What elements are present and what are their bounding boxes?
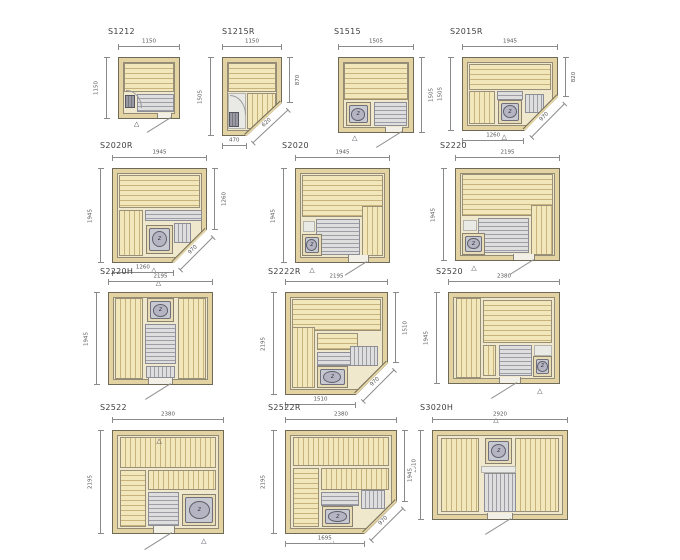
heater-top: z: [328, 511, 346, 521]
dimension: 1510: [404, 430, 405, 502]
dimension-label: 1150: [141, 40, 157, 46]
bench: [483, 345, 496, 376]
dimension-label: 2920: [492, 413, 508, 419]
heater-icon: z: [317, 366, 347, 388]
floor-boards: [145, 324, 176, 364]
dimension: 2195: [285, 281, 388, 282]
floor-boards: [350, 346, 378, 366]
dimension: 1695: [285, 543, 365, 544]
heater-icon: z: [322, 506, 353, 526]
plan-title-s2222r: S2222R: [268, 268, 301, 276]
heater-stones: z: [501, 103, 519, 121]
heater-stones: z: [150, 301, 171, 319]
bench: [456, 298, 481, 377]
dimension: 2195: [273, 292, 274, 395]
heater-top: z: [189, 501, 210, 519]
heater-icon: z: [302, 234, 322, 256]
plan-title-s1515: S1515: [334, 28, 361, 36]
bench: [483, 300, 552, 343]
steam-icon: z: [198, 507, 201, 513]
dimension: 1505: [450, 57, 451, 131]
dimension: 470: [222, 145, 247, 146]
vent-icon: △: [471, 265, 476, 272]
bench: [344, 63, 408, 100]
steam-icon: z: [357, 111, 360, 117]
dimension-label: 2195: [153, 275, 169, 281]
heater-stones: z: [488, 441, 509, 461]
plan-walls: z: [112, 430, 224, 534]
dimension-label: 1510: [403, 320, 409, 336]
bench: [362, 206, 383, 256]
heater-stones: z: [305, 237, 319, 253]
plan-title-s2020: S2020: [282, 142, 309, 150]
dimension-label: 1260: [485, 134, 501, 140]
door-swing-line: [376, 131, 402, 148]
dimension: 1505: [210, 57, 211, 136]
floor-boards: [497, 91, 523, 100]
plan-title-s2020r: S2020R: [100, 142, 133, 150]
dimension-label: 1945: [431, 207, 437, 223]
dimension: 2195: [273, 430, 274, 534]
plan-s2020: z△19451945: [295, 168, 390, 263]
plan-s2220h: z△21951945: [108, 292, 213, 385]
heater-stones: z: [325, 509, 350, 523]
bench: [321, 468, 389, 490]
plan-title-s3020h: S3020H: [420, 404, 453, 412]
dimension-label: 2195: [88, 474, 94, 490]
dimension: 2195: [108, 281, 213, 282]
plan-s2222r: z△9702195219515101510: [285, 292, 388, 395]
floor-boards: [137, 94, 174, 112]
heater-top: z: [537, 361, 547, 372]
bench: [228, 63, 277, 92]
steam-icon: z: [336, 514, 339, 520]
vent-icon: △: [352, 135, 357, 142]
floor-area: [534, 345, 553, 356]
heater-stones: z: [465, 236, 482, 252]
bench: [119, 210, 143, 257]
dimension-label: 1505: [198, 89, 204, 105]
dimension: 820: [565, 57, 566, 97]
plan-walls: z: [448, 292, 560, 384]
bench: [120, 470, 146, 527]
plan-title-s2520: S2520: [436, 268, 463, 276]
dimension-label: 1505: [368, 40, 384, 46]
dimension-label: 870: [296, 74, 302, 87]
bench: [119, 175, 201, 208]
bench: [292, 327, 315, 388]
heater-top: z: [351, 108, 365, 121]
heater-icon: z: [346, 102, 371, 126]
heater-stones: z: [149, 228, 169, 251]
steam-icon: z: [541, 363, 544, 369]
vent-icon: △: [537, 388, 542, 395]
dimension-label: 1945: [502, 40, 518, 46]
dimension: 2195: [455, 157, 560, 158]
dimension-label: 1260: [135, 266, 151, 272]
vent-icon: △: [201, 538, 206, 545]
plan-s1515: z△15051505: [338, 57, 414, 133]
floor-boards: [148, 492, 179, 526]
dimension: 1260: [214, 168, 215, 230]
steam-icon: z: [331, 374, 334, 380]
dimension: 1945: [462, 46, 558, 47]
plan-walls: z: [432, 430, 568, 520]
floor-area: [481, 466, 516, 473]
plan-s2220: z△21951945: [455, 168, 560, 261]
dimension-label: 1945: [424, 330, 430, 346]
dimension: 1505: [421, 57, 422, 133]
dimension: 1945: [100, 168, 101, 263]
bench: [293, 437, 390, 466]
plan-title-s2522: S2522: [100, 404, 127, 412]
dimension-label: 1945: [88, 208, 94, 224]
door-opening: [499, 377, 521, 383]
heater-icon: z: [462, 233, 485, 255]
bench: [148, 470, 216, 490]
vent-icon: △: [309, 267, 314, 274]
heater-icon: z: [485, 438, 512, 464]
steam-icon: z: [508, 109, 511, 115]
plan-title-s2220h: S2220H: [100, 268, 133, 276]
plan-title-s1212: S1212: [108, 28, 135, 36]
dimension: 1945: [436, 292, 437, 384]
plan-title-s2522r: S2522R: [268, 404, 301, 412]
dimension: 870: [289, 57, 290, 103]
dimension: 1260: [462, 140, 524, 141]
dimension-label: 2195: [329, 275, 345, 281]
plan-title-s2015r: S2015R: [450, 28, 483, 36]
steam-icon: z: [497, 448, 500, 454]
plan-s2520: z△23801945: [448, 292, 560, 384]
heater-stones: z: [185, 497, 213, 523]
bench: [469, 64, 552, 90]
bench: [531, 205, 553, 254]
floor-boards: [317, 352, 353, 366]
sauna-plans-sheet: S1212△11501150S1215R△62011501505870470S1…: [0, 0, 680, 560]
dimension: 1505: [338, 46, 414, 47]
dimension: 1150: [222, 46, 282, 47]
steam-icon: z: [159, 307, 162, 313]
heater-top: z: [152, 231, 167, 247]
plan-walls: z: [455, 168, 560, 261]
heater-top: z: [306, 239, 317, 251]
dimension-label: 470: [228, 139, 241, 145]
floor-boards: [321, 492, 358, 506]
floor-boards: [484, 473, 516, 512]
plan-walls: z: [338, 57, 414, 133]
vent-icon: △: [134, 121, 139, 128]
plan-s1212: △11501150: [118, 57, 180, 119]
dimension: 1150: [106, 57, 107, 119]
heater-top: z: [503, 105, 517, 118]
dimension: 1945: [283, 168, 284, 263]
dimension: 2380: [448, 281, 560, 282]
dimension-label: 2195: [500, 151, 516, 157]
bench: [293, 468, 319, 527]
heater-stones: z: [320, 369, 344, 385]
steam-icon: z: [472, 241, 475, 247]
dimension: 1945: [443, 168, 444, 261]
dimension-label: 1945: [408, 467, 414, 483]
plan-walls: z: [108, 292, 213, 385]
dimension-label: 1505: [429, 87, 435, 103]
dimension-label: 1510: [313, 398, 329, 404]
floor-boards: [374, 102, 407, 126]
floor-boards: [478, 218, 530, 253]
bench: [178, 298, 206, 378]
heater-icon: z: [182, 494, 216, 526]
bench: [115, 298, 143, 378]
plan-s2015r: z△970194515058201260: [462, 57, 558, 131]
plan-title-s2220: S2220: [440, 142, 467, 150]
heater-icon: z: [146, 225, 172, 254]
dimension: 2920: [432, 419, 568, 420]
plan-s2522r: z△9702380219515101695: [285, 430, 397, 534]
heater-top: z: [491, 444, 507, 459]
dimension-label: 2380: [333, 413, 349, 419]
heater-icon: z: [147, 298, 174, 322]
plan-title-s1215r: S1215R: [222, 28, 255, 36]
dimension: 1945: [420, 430, 421, 520]
dimension: 1510: [395, 292, 396, 363]
dimension-label: 1945: [335, 151, 351, 157]
plan-walls: [118, 57, 180, 119]
floor-boards: [361, 490, 385, 508]
floor-area: [303, 221, 315, 232]
floor-boards: [499, 345, 532, 376]
door-swing-line: [485, 518, 511, 535]
heater-top: z: [323, 371, 341, 383]
bench: [120, 437, 217, 468]
steam-icon: z: [158, 236, 161, 242]
dimension: 1945: [112, 157, 207, 158]
plan-s2522: z△△23802195: [112, 430, 224, 534]
dimension-label: 2380: [160, 413, 176, 419]
heater-icon: z: [533, 356, 553, 377]
heater-top: z: [467, 238, 480, 249]
dimension-label: 1260: [222, 191, 228, 207]
dimension-label: 2380: [496, 275, 512, 281]
dimension-label: 1695: [317, 537, 333, 543]
dimension-label: 2195: [261, 474, 267, 490]
dimension-label: 2195: [261, 336, 267, 352]
dimension-label: 1945: [271, 208, 277, 224]
heater-stones: z: [536, 359, 550, 374]
heater-top: z: [153, 304, 169, 317]
floor-boards: [146, 366, 175, 378]
dimension-label: 1945: [84, 331, 90, 347]
dimension: 1150: [118, 46, 180, 47]
heater-icon: z: [498, 100, 522, 124]
heater-stones: z: [349, 105, 368, 123]
plan-s3020h: z△29201945: [432, 430, 568, 520]
dimension-label: 1945: [152, 151, 168, 157]
bench: [515, 438, 559, 512]
plan-walls: z: [295, 168, 390, 263]
steam-icon: z: [310, 242, 313, 248]
dimension-label: 820: [572, 71, 578, 84]
bench: [124, 63, 174, 92]
floor-area: [463, 220, 476, 231]
door-swing-line: [147, 118, 171, 134]
floor-boards: [174, 223, 191, 243]
bench: [469, 91, 495, 124]
door-swing-line: [491, 382, 517, 399]
dimension-label: 1505: [438, 86, 444, 102]
plan-s2020r: z△9701945194512601260: [112, 168, 207, 263]
floor-boards: [316, 219, 361, 254]
dimension: 1945: [96, 292, 97, 385]
door-swing-line: [145, 532, 173, 550]
plan-s1215r: △62011501505870470: [222, 57, 282, 136]
dimension-label: 1150: [94, 80, 100, 96]
dimension: 2380: [112, 419, 224, 420]
dimension: 1945: [295, 157, 390, 158]
dimension: 2195: [100, 430, 101, 534]
door-swing-line: [145, 383, 171, 400]
vent-icon: △: [156, 438, 161, 445]
dimension-label: 1150: [244, 40, 260, 46]
floor-boards: [145, 210, 203, 221]
bench: [441, 438, 479, 512]
dimension: 2380: [285, 419, 397, 420]
